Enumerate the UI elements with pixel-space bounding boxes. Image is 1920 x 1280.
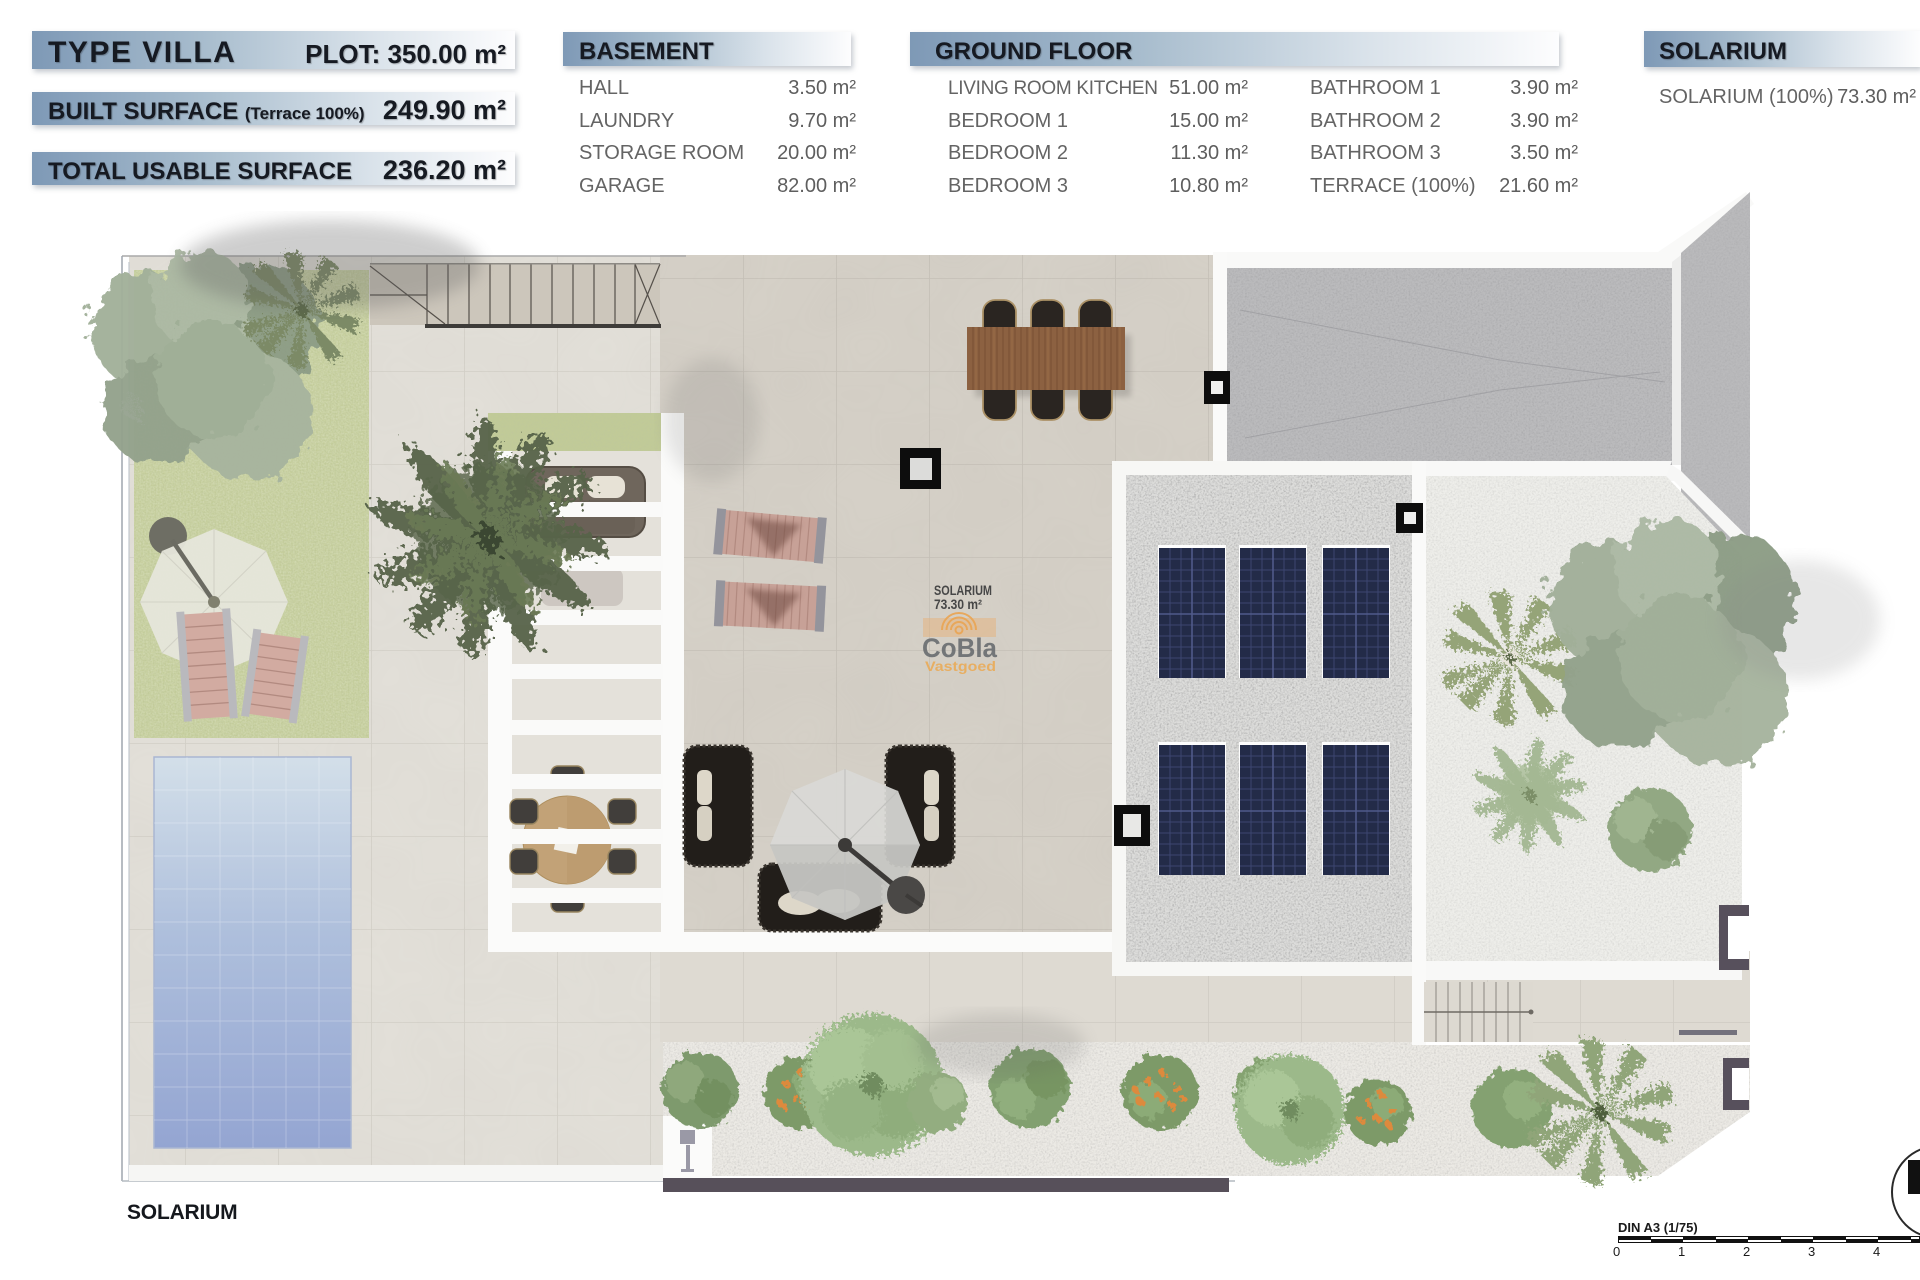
svg-text:73.30 m²: 73.30 m² xyxy=(934,596,982,612)
svg-text:Vastgoed: Vastgoed xyxy=(925,658,996,674)
